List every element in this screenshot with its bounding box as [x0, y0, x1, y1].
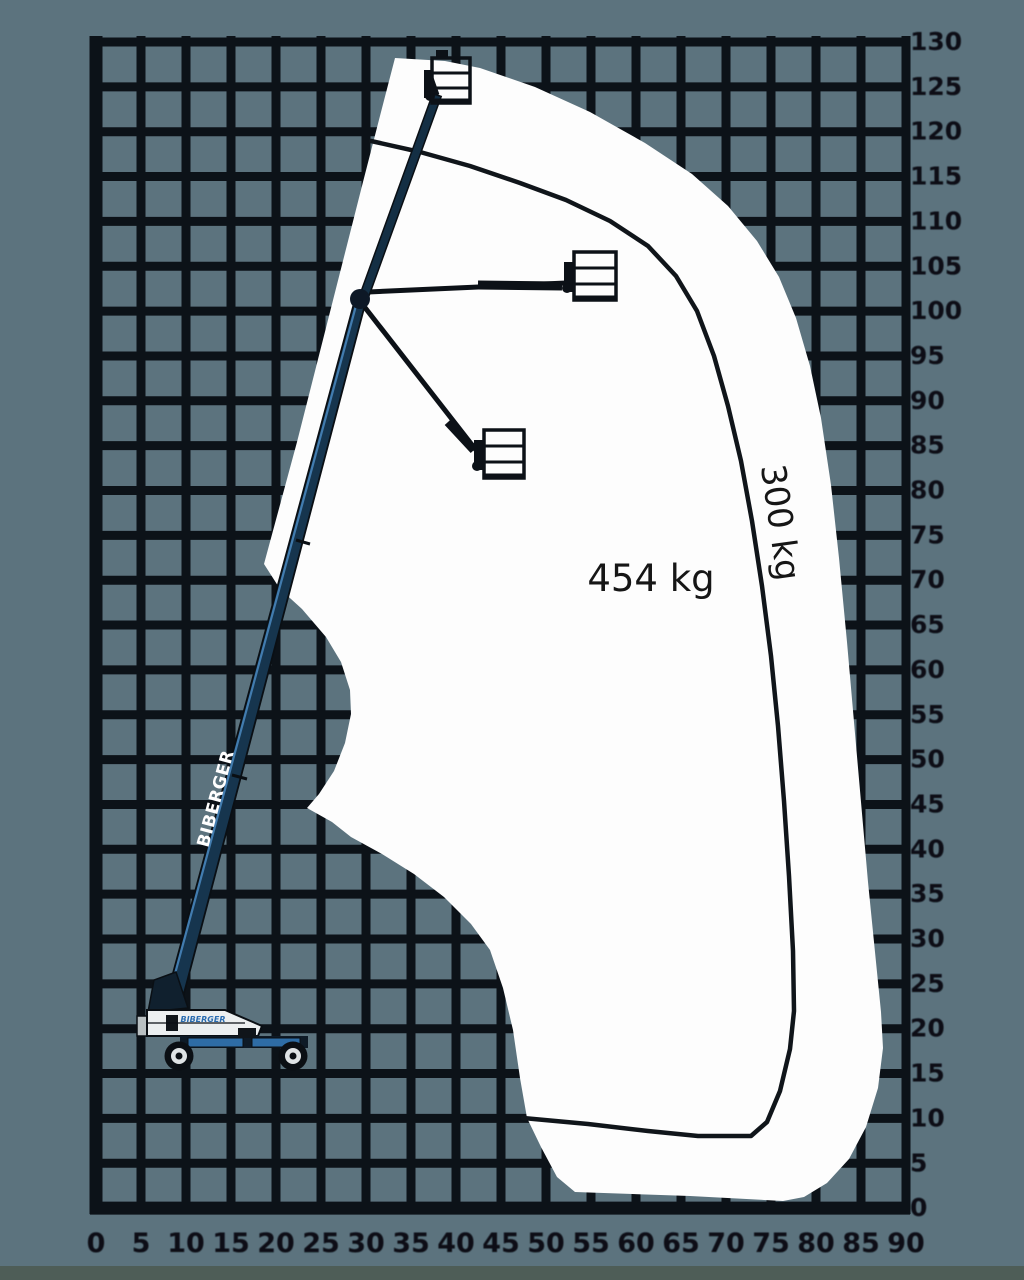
range-diagram: 454 kg 300 kg BIBERGER [0, 0, 1024, 1280]
wheel-front [165, 1042, 194, 1071]
y-tick-label: 40 [910, 834, 945, 863]
diagram-canvas: 454 kg 300 kg BIBERGER [0, 0, 1024, 1280]
x-axis-tick-labels: 051015202530354045505560657075808590 [87, 1228, 925, 1259]
y-tick-label: 90 [910, 386, 945, 415]
y-tick-label: 25 [910, 969, 945, 998]
y-tick-label: 105 [910, 251, 962, 280]
y-tick-label: 15 [910, 1059, 945, 1088]
x-tick-label: 80 [797, 1228, 835, 1259]
x-tick-label: 35 [392, 1228, 430, 1259]
x-tick-label: 0 [87, 1228, 106, 1259]
x-tick-label: 60 [617, 1228, 655, 1259]
body-logo: BIBERGER [181, 1015, 226, 1024]
x-tick-label: 20 [257, 1228, 295, 1259]
footer-strip [0, 1266, 1024, 1280]
x-tick-label: 5 [132, 1228, 151, 1259]
y-tick-label: 95 [910, 341, 945, 370]
y-tick-label: 110 [910, 206, 962, 235]
y-tick-label: 125 [910, 72, 962, 101]
y-tick-label: 50 [910, 745, 945, 774]
y-tick-label: 85 [910, 431, 945, 460]
x-tick-label: 40 [437, 1228, 475, 1259]
y-tick-label: 80 [910, 476, 945, 505]
y-tick-label: 10 [910, 1103, 945, 1132]
x-tick-label: 90 [887, 1228, 925, 1259]
x-tick-label: 25 [302, 1228, 340, 1259]
y-tick-label: 30 [910, 924, 945, 953]
x-tick-label: 10 [167, 1228, 205, 1259]
x-tick-label: 55 [572, 1228, 610, 1259]
knuckle-joint [350, 289, 370, 309]
y-tick-label: 130 [910, 27, 962, 56]
x-tick-label: 50 [527, 1228, 565, 1259]
x-tick-label: 85 [842, 1228, 880, 1259]
x-tick-label: 45 [482, 1228, 520, 1259]
x-tick-label: 75 [752, 1228, 790, 1259]
y-tick-label: 100 [910, 296, 962, 325]
wheel-rear [279, 1042, 308, 1071]
y-tick-label: 35 [910, 879, 945, 908]
x-tick-label: 65 [662, 1228, 700, 1259]
y-tick-label: 115 [910, 162, 962, 191]
y-tick-label: 5 [910, 1148, 927, 1177]
y-tick-label: 45 [910, 789, 945, 818]
inner-capacity-label: 454 kg [587, 557, 714, 600]
x-tick-label: 70 [707, 1228, 745, 1259]
y-tick-label: 0 [910, 1193, 927, 1222]
y-tick-label: 60 [910, 655, 945, 684]
y-tick-label: 65 [910, 610, 945, 639]
y-tick-label: 20 [910, 1014, 945, 1043]
y-tick-label: 55 [910, 700, 945, 729]
y-tick-label: 75 [910, 520, 945, 549]
x-tick-label: 30 [347, 1228, 385, 1259]
y-tick-label: 70 [910, 565, 945, 594]
x-tick-label: 15 [212, 1228, 250, 1259]
y-tick-label: 120 [910, 117, 962, 146]
